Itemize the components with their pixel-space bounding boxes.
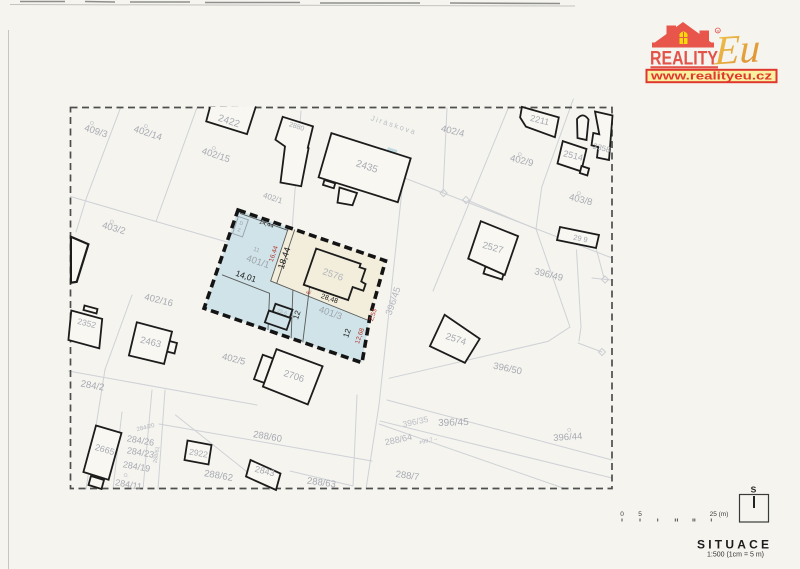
svg-text:0: 0 bbox=[620, 511, 624, 518]
svg-text:www.realityeu.cz: www.realityeu.cz bbox=[650, 71, 773, 83]
svg-text:Eu: Eu bbox=[713, 24, 761, 73]
svg-text:396/45: 396/45 bbox=[438, 417, 469, 429]
svg-text:O.: O. bbox=[567, 427, 573, 433]
svg-text:1:500 (1cm = 5 m): 1:500 (1cm = 5 m) bbox=[707, 552, 764, 559]
svg-text:25 (m): 25 (m) bbox=[710, 511, 729, 518]
svg-text:O.: O. bbox=[123, 473, 129, 480]
svg-text:S: S bbox=[751, 485, 757, 495]
svg-text:5: 5 bbox=[638, 511, 642, 518]
